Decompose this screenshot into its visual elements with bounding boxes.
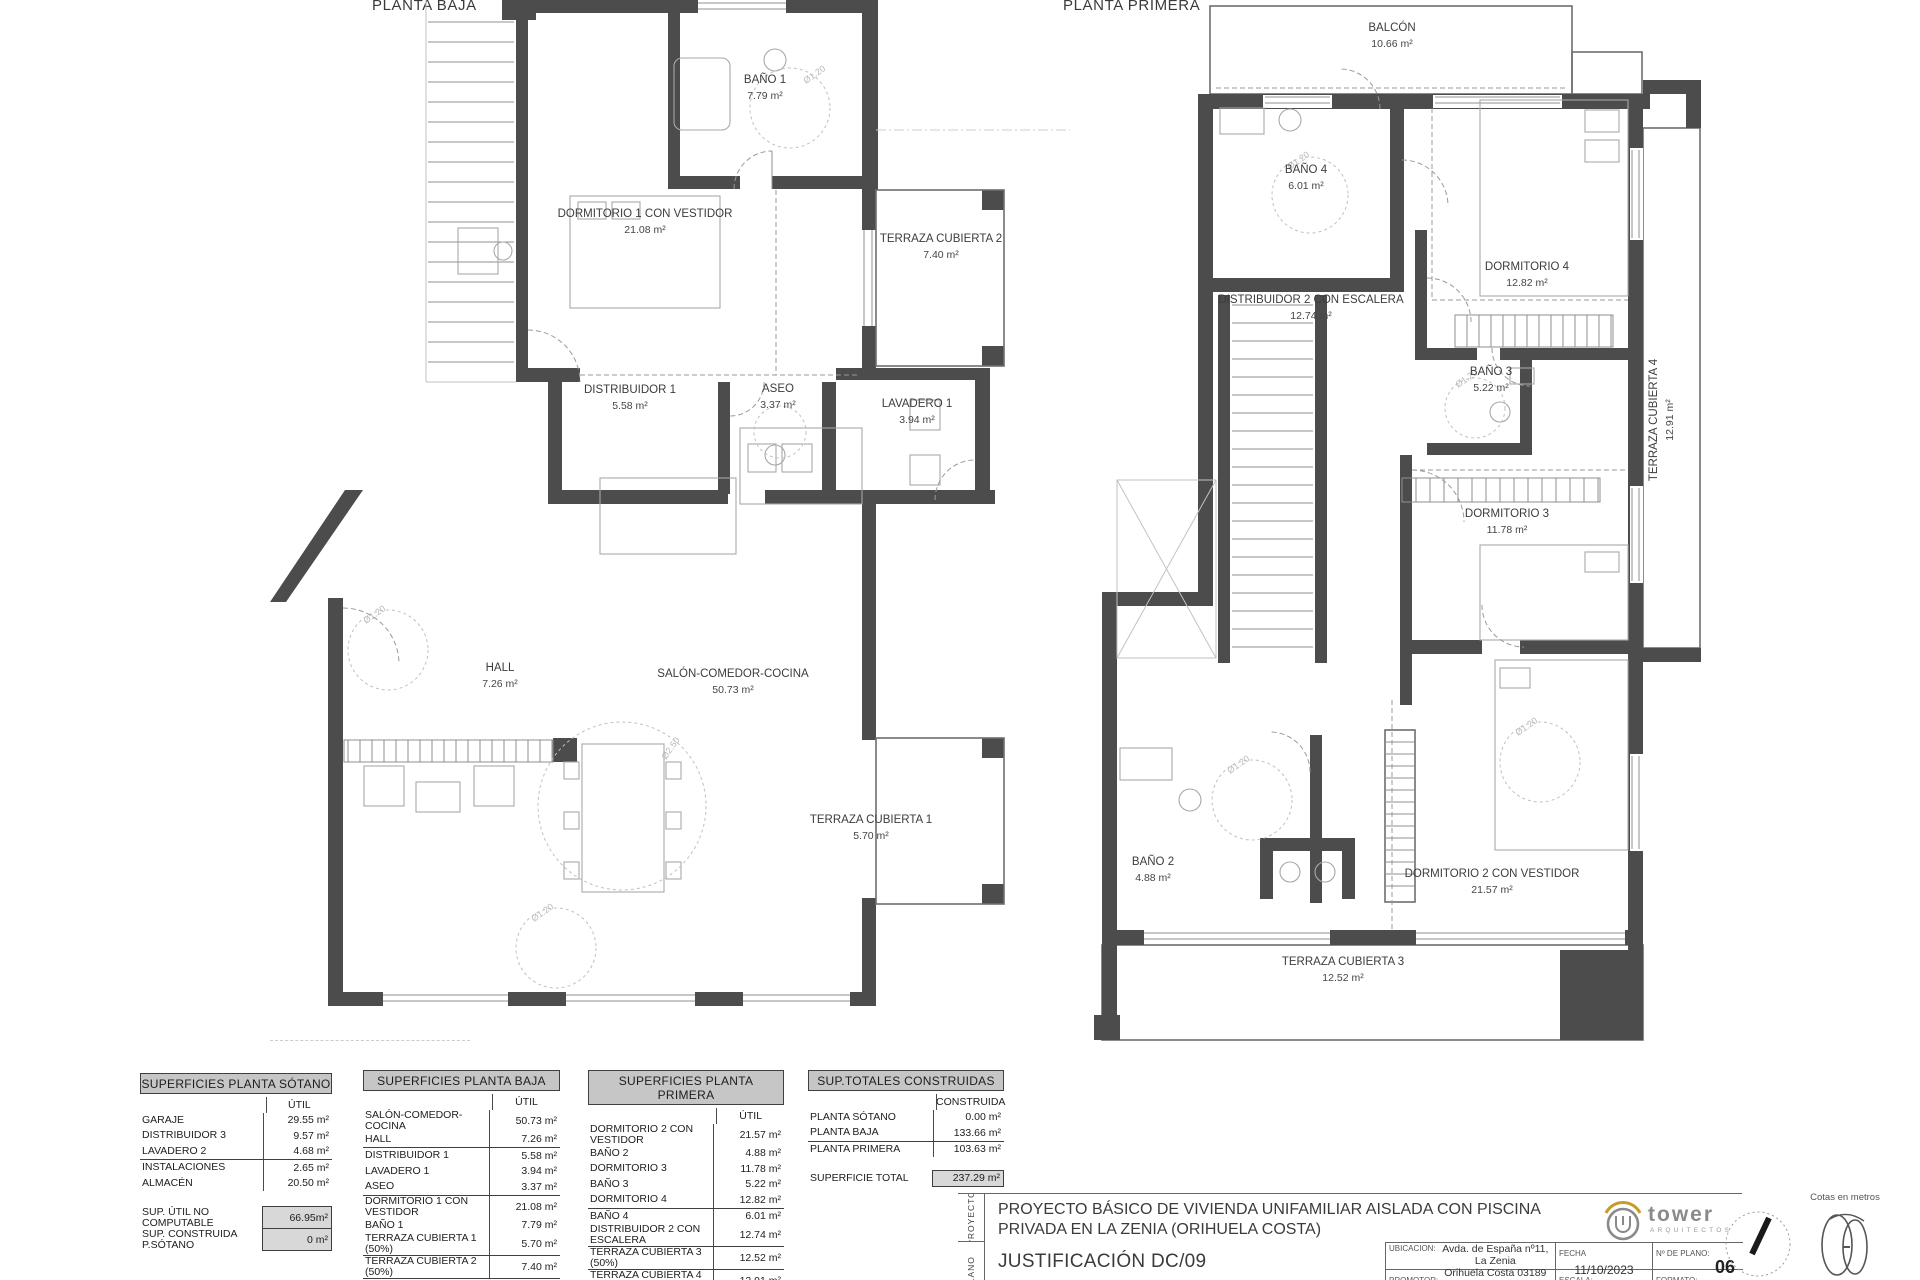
room-name: TERRAZA CUBIERTA 1 [810,814,932,826]
room-label: HALL7.26 m² [482,660,518,692]
sheet-title: JUSTIFICACIÓN DC/09 [998,1251,1206,1273]
room-area: 3.94 m² [882,413,953,428]
room-name: BAÑO 4 [1285,164,1327,176]
table-row: LAVADERO 24.68 m² [140,1144,332,1161]
table-row: TERRAZA CUBIERTA 3 (50%)12.52 m² [588,1247,784,1270]
table-header-row: CONSTRUIDA [808,1094,1004,1110]
row-value: 5.70 m² [489,1233,560,1255]
table-header-row: ÚTIL [363,1094,560,1110]
row-label: TERRAZA CUBIERTA 4 (50%) [588,1270,713,1280]
room-area: 11.78 m² [1465,523,1549,538]
row-value: 21.08 m² [489,1196,560,1218]
table-row: LAVADERO 13.94 m² [363,1164,560,1180]
room-name: DISTRIBUIDOR 2 CON ESCALERA [1218,294,1403,306]
room-area: 7.79 m² [744,89,786,104]
row-value: 7.40 m² [489,1256,560,1278]
row-value: 50.73 m² [489,1110,560,1132]
room-name: LAVADERO 1 [882,398,953,410]
room-name: DORMITORIO 2 CON VESTIDOR [1405,868,1580,880]
north-arrow-icon [1712,1192,1804,1280]
row-value: 7.26 m² [489,1132,560,1148]
escala-label: ESCALA: [1556,1275,1593,1280]
row-value: 29.55 m² [263,1113,332,1129]
room-name: BAÑO 3 [1470,366,1512,378]
row-label: PLANTA BAJA [808,1127,933,1138]
room-name: BAÑO 1 [744,74,786,86]
row-value: 7.79 m² [489,1218,560,1234]
room-area: 7.40 m² [880,248,1002,263]
table-row: DISTRIBUIDOR 39.57 m² [140,1128,332,1144]
room-name: TERRAZA CUBIERTA 2 [880,233,1002,245]
row-label: BAÑO 4 [588,1211,713,1222]
room-label: DORMITORIO 1 CON VESTIDOR21.08 m² [558,206,733,238]
row-value: 5.58 m² [489,1148,560,1164]
row-label: GARAJE [140,1115,263,1126]
column-header: ÚTIL [716,1108,784,1124]
row-value: 103.63 m² [933,1142,1004,1158]
table-row: DISTRIBUIDOR 15.58 m² [363,1148,560,1164]
table-total-row: SUPERFICIE TOTAL237.29 m² [808,1171,1004,1187]
row-value: 11.78 m² [713,1161,784,1177]
row-value: 12.91 m² [713,1270,784,1280]
svg-text:Ø1.20: Ø1.20 [529,901,555,923]
row-label: DISTRIBUIDOR 3 [140,1130,263,1141]
row-value: 12.52 m² [713,1247,784,1269]
room-area: 21.57 m² [1405,883,1580,898]
surface-table-baja: SUPERFICIES PLANTA BAJAÚTILSALÓN-COMEDOR… [363,1070,560,1280]
row-value: 3.94 m² [489,1164,560,1180]
room-area: 12.52 m² [1282,971,1404,986]
room-area: 5.70 m² [810,829,932,844]
total-value: 237.29 m² [932,1170,1004,1187]
total-label: SUPERFICIE TOTAL [808,1173,932,1184]
table-row: BAÑO 17.79 m² [363,1218,560,1234]
table-row: TERRAZA CUBIERTA 4 (50%)12.91 m² [588,1270,784,1280]
row-value: 20.50 m² [263,1176,332,1192]
row-value: 133.66 m² [933,1125,1004,1141]
row-label: HALL [363,1134,489,1145]
row-value: 3.37 m² [489,1179,560,1195]
row-value: 6.01 m² [713,1209,784,1225]
total-label: SUP. ÚTIL NO COMPUTABLE [140,1207,262,1229]
room-area: 5.22 m² [1470,381,1512,396]
room-name: SALÓN-COMEDOR-COCINA [657,668,808,680]
table-row: DORMITORIO 1 CON VESTIDOR21.08 m² [363,1196,560,1218]
table-row: BAÑO 24.88 m² [588,1146,784,1162]
cotas-note: Cotas en metros [1810,1192,1880,1203]
table-row: PLANTA PRIMERA103.63 m² [808,1142,1004,1158]
row-label: DORMITORIO 3 [588,1163,713,1174]
svg-text:Ø1.20: Ø1.20 [801,63,827,85]
table-title: SUP.TOTALES CONSTRUIDAS [808,1070,1004,1091]
ubicacion-line1: Avda. de España nº11, La Zenia [1436,1243,1555,1267]
fecha-cell: FECHA 11/10/2023 [1556,1243,1653,1270]
room-name: ASEO [762,383,794,395]
room-name: HALL [486,662,515,674]
svg-text:Ø1.20: Ø1.20 [1513,715,1539,737]
row-label: DORMITORIO 2 CON VESTIDOR [588,1124,713,1146]
row-value: 12.82 m² [713,1192,784,1208]
row-value: 12.74 m² [713,1224,784,1246]
table-spacer [140,1191,332,1207]
room-label: DORMITORIO 412.82 m² [1485,259,1569,291]
table-row: PLANTA BAJA133.66 m² [808,1125,1004,1142]
column-header: ÚTIL [266,1097,332,1113]
title-block: PROYECTO PLANO PROYECTO BÁSICO DE VIVIEN… [958,1193,1742,1280]
room-name: DISTRIBUIDOR 1 [584,384,676,396]
room-name: DORMITORIO 4 [1485,261,1569,273]
table-spacer [808,1157,1004,1171]
row-label: PLANTA PRIMERA [808,1144,933,1155]
surface-table-primera: SUPERFICIES PLANTA PRIMERAÚTILDORMITORIO… [588,1070,784,1280]
table-row: ALMACÉN20.50 m² [140,1176,332,1192]
row-label: DORMITORIO 1 CON VESTIDOR [363,1196,489,1218]
row-label: ASEO [363,1181,489,1192]
row-value: 2.65 m² [263,1160,332,1176]
room-label: DISTRIBUIDOR 2 CON ESCALERA12.74 m² [1218,292,1403,324]
ubicacion-cell: UBICACION: Avda. de España nº11, La Zeni… [1386,1243,1556,1270]
room-name: DORMITORIO 3 [1465,508,1549,520]
surface-table-sotano: SUPERFICIES PLANTA SÓTANOÚTILGARAJE29.55… [140,1073,332,1251]
room-area: 3.37 m² [760,398,796,413]
table-row: BAÑO 35.22 m² [588,1177,784,1193]
table-row: ASEO3.37 m² [363,1179,560,1196]
promotor-label: PROMOTOR: [1386,1275,1438,1280]
title-block-info-grid: UBICACION: Avda. de España nº11, La Zeni… [1385,1242,1743,1280]
room-label: TERRAZA CUBIERTA 15.70 m² [810,812,932,844]
row-value: 4.88 m² [713,1146,784,1162]
room-area: 10.66 m² [1368,37,1415,52]
tower-logo-icon [1600,1197,1646,1243]
row-label: TERRAZA CUBIERTA 3 (50%) [588,1247,713,1269]
formato-label: FORMATO: [1653,1275,1697,1280]
row-label: SALÓN-COMEDOR-COCINA [363,1110,489,1132]
drawing-sheet: PLANTA BAJA PLANTA PRIMERA [0,0,1920,1280]
total-value: 66.95m² [262,1206,332,1229]
row-label: BAÑO 3 [588,1179,713,1190]
room-label: ASEO3.37 m² [760,381,796,413]
room-label: BAÑO 46.01 m² [1285,162,1327,194]
row-value: 5.22 m² [713,1177,784,1193]
total-label: SUP. CONSTRUIDA P.SÓTANO [140,1229,262,1251]
room-area: 12.74 m² [1218,309,1403,324]
table-row: SALÓN-COMEDOR-COCINA50.73 m² [363,1110,560,1132]
surface-table-totales: SUP.TOTALES CONSTRUIDASCONSTRUIDAPLANTA … [808,1070,1004,1187]
column-header: ÚTIL [492,1094,560,1110]
row-label: LAVADERO 1 [363,1166,489,1177]
svg-text:Ø2.50: Ø2.50 [659,735,681,761]
room-area: 50.73 m² [657,683,808,698]
table-row: TERRAZA CUBIERTA 1 (50%)5.70 m² [363,1233,560,1256]
row-value: 4.68 m² [263,1144,332,1160]
room-name: TERRAZA CUBIERTA 3 [1282,956,1404,968]
table-row: DORMITORIO 311.78 m² [588,1161,784,1177]
table-row: DORMITORIO 412.82 m² [588,1192,784,1209]
logo-name: tower [1648,1203,1714,1227]
room-name: BALCÓN [1368,22,1415,34]
room-area: 12.91 m² [1663,359,1678,481]
table-header-row: ÚTIL [140,1097,332,1113]
row-label: DISTRIBUIDOR 1 [363,1150,489,1161]
row-label: TERRAZA CUBIERTA 1 (50%) [363,1233,489,1255]
row-value: 0.00 m² [933,1110,1004,1126]
room-name: TERRAZA CUBIERTA 4 [1648,359,1660,481]
title-block-side-strip: PROYECTO PLANO [958,1194,985,1280]
table-row: DISTRIBUIDOR 2 CON ESCALERA12.74 m² [588,1224,784,1247]
table-row: PLANTA SÓTANO0.00 m² [808,1110,1004,1126]
table-total-row: SUP. ÚTIL NO COMPUTABLE66.95m² [140,1207,332,1229]
row-value: 21.57 m² [713,1124,784,1146]
project-title: PROYECTO BÁSICO DE VIVIENDA UNIFAMILIAR … [998,1200,1578,1240]
table-title: SUPERFICIES PLANTA PRIMERA [588,1070,784,1105]
room-label: LAVADERO 13.94 m² [882,396,953,428]
row-label: PLANTA SÓTANO [808,1112,933,1123]
num-plano-label: Nº DE PLANO: [1653,1248,1710,1258]
room-area: 21.08 m² [558,223,733,238]
room-label: TERRAZA CUBIERTA 312.52 m² [1282,954,1404,986]
room-label: SALÓN-COMEDOR-COCINA50.73 m² [657,666,808,698]
svg-text:Ø1.20: Ø1.20 [361,603,387,625]
fecha-label: FECHA [1556,1248,1586,1258]
room-area: 4.88 m² [1132,871,1174,886]
sketch-glyph [1812,1205,1882,1280]
room-area: 6.01 m² [1285,179,1327,194]
room-area: 12.82 m² [1485,276,1569,291]
table-row: HALL7.26 m² [363,1132,560,1149]
table-row: DORMITORIO 2 CON VESTIDOR21.57 m² [588,1124,784,1146]
planta-baja-drawing: Ø1.20 Ø1.20 Ø1.20 Ø2.50 [270,0,1070,1050]
room-area: 7.26 m² [482,677,518,692]
table-row: GARAJE29.55 m² [140,1113,332,1129]
promotor-cell: PROMOTOR: [1386,1270,1556,1280]
row-label: LAVADERO 2 [140,1146,263,1157]
room-area: 5.58 m² [584,399,676,414]
room-label: BALCÓN10.66 m² [1368,20,1415,52]
room-label: DORMITORIO 311.78 m² [1465,506,1549,538]
row-label: INSTALACIONES [140,1162,263,1173]
table-title: SUPERFICIES PLANTA BAJA [363,1070,560,1091]
room-label: BAÑO 17.79 m² [744,72,786,104]
row-label: BAÑO 1 [363,1220,489,1231]
row-value: 9.57 m² [263,1128,332,1144]
row-label: DISTRIBUIDOR 2 CON ESCALERA [588,1224,713,1246]
table-title: SUPERFICIES PLANTA SÓTANO [140,1073,332,1094]
room-name: BAÑO 2 [1132,856,1174,868]
ground-line [270,1040,470,1041]
table-row: TERRAZA CUBIERTA 2 (50%)7.40 m² [363,1256,560,1279]
table-total-row: SUP. CONSTRUIDA P.SÓTANO0 m² [140,1229,332,1251]
row-label: DORMITORIO 4 [588,1194,713,1205]
row-label: ALMACÉN [140,1178,263,1189]
room-label: BAÑO 24.88 m² [1132,854,1174,886]
table-row: BAÑO 46.01 m² [588,1209,784,1225]
row-label: BAÑO 2 [588,1148,713,1159]
room-label: TERRAZA CUBIERTA 27.40 m² [880,231,1002,263]
column-header: CONSTRUIDA [936,1094,1004,1110]
room-label: TERRAZA CUBIERTA 412.91 m² [1646,359,1678,481]
room-name: DORMITORIO 1 CON VESTIDOR [558,208,733,220]
table-header-row: ÚTIL [588,1108,784,1124]
proyecto-strip-label: PROYECTO [966,1194,976,1242]
room-label: DORMITORIO 2 CON VESTIDOR21.57 m² [1405,866,1580,898]
table-row: INSTALACIONES2.65 m² [140,1160,332,1176]
svg-text:Ø1.20: Ø1.20 [1225,753,1251,775]
total-value: 0 m² [262,1228,332,1251]
room-label: BAÑO 35.22 m² [1470,364,1512,396]
plano-strip-label: PLANO [966,1256,976,1280]
escala-cell: ESCALA: 1:75 [1556,1270,1653,1280]
row-label: TERRAZA CUBIERTA 2 (50%) [363,1256,489,1278]
room-label: DISTRIBUIDOR 15.58 m² [584,382,676,414]
